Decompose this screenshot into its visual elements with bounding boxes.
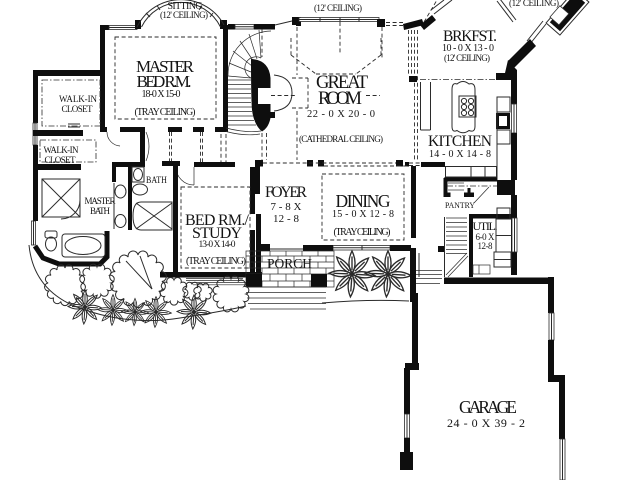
svg-text:12-8: 12-8	[478, 241, 494, 251]
svg-text:(12' CEILING): (12' CEILING)	[314, 3, 362, 13]
svg-text:18-0 X 15-0: 18-0 X 15-0	[142, 89, 181, 100]
svg-text:(12' CEILING): (12' CEILING)	[160, 10, 208, 20]
svg-text:GARAGE: GARAGE	[459, 397, 517, 417]
svg-text:DINING: DINING	[336, 191, 391, 211]
svg-text:12 - 8: 12 - 8	[273, 213, 300, 225]
svg-text:BATH: BATH	[146, 175, 167, 185]
svg-text:MASTER: MASTER	[85, 196, 116, 206]
svg-text:WALK-IN: WALK-IN	[59, 94, 98, 104]
svg-text:(TRAY CEILING): (TRAY CEILING)	[186, 256, 246, 267]
svg-text:CLOSET: CLOSET	[62, 104, 94, 114]
svg-text:14 - 0 X 14 - 8: 14 - 0 X 14 - 8	[429, 149, 491, 160]
svg-text:(TRAY CEILING): (TRAY CEILING)	[334, 227, 391, 238]
svg-text:(TRAY CEILING): (TRAY CEILING)	[135, 107, 196, 118]
svg-text:ROOM: ROOM	[318, 89, 362, 109]
svg-text:CLOSET: CLOSET	[45, 155, 77, 165]
svg-text:7 - 8 X: 7 - 8 X	[271, 201, 302, 213]
svg-text:PANTRY: PANTRY	[445, 200, 475, 210]
svg-text:24 - 0 X 39 - 2: 24 - 0 X 39 - 2	[447, 416, 525, 430]
svg-text:WALK-IN: WALK-IN	[44, 145, 80, 155]
svg-text:(CATHEDRAL CEILING): (CATHEDRAL CEILING)	[299, 134, 383, 144]
svg-text:(12' CEILING): (12' CEILING)	[509, 0, 559, 8]
svg-text:(12' CEILING): (12' CEILING)	[444, 53, 490, 63]
svg-text:UTIL.: UTIL.	[473, 219, 498, 233]
svg-text:15 - 0 X 12 - 8: 15 - 0 X 12 - 8	[332, 209, 394, 220]
svg-text:FOYER: FOYER	[265, 184, 308, 201]
svg-text:PORCH: PORCH	[267, 256, 312, 271]
svg-text:22 - 0 X 20 - 0: 22 - 0 X 20 - 0	[307, 109, 375, 120]
svg-text:BATH: BATH	[90, 206, 111, 216]
svg-text:13-0 X 14-0: 13-0 X 14-0	[199, 240, 236, 250]
svg-text:KITCHEN: KITCHEN	[428, 133, 492, 150]
